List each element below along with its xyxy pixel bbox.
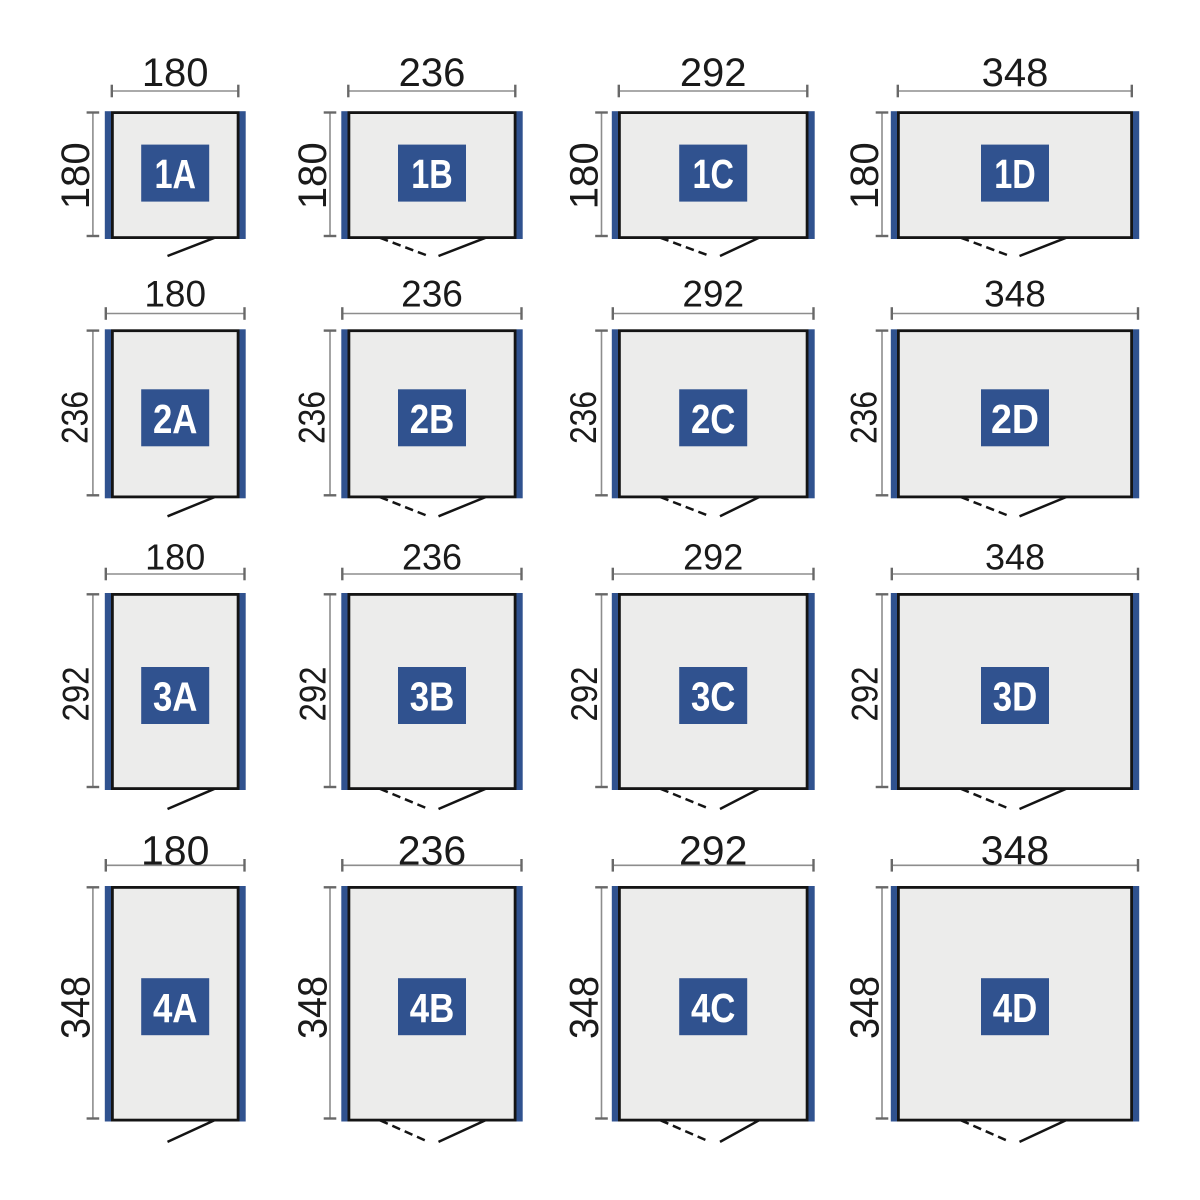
svg-text:236: 236 <box>563 391 604 444</box>
svg-text:2B: 2B <box>410 396 455 442</box>
svg-text:3C: 3C <box>691 674 736 720</box>
svg-text:348: 348 <box>561 976 607 1039</box>
svg-text:236: 236 <box>398 828 466 874</box>
svg-text:236: 236 <box>292 391 333 444</box>
svg-text:292: 292 <box>682 274 744 315</box>
svg-text:348: 348 <box>981 828 1049 874</box>
svg-text:1D: 1D <box>994 151 1036 197</box>
svg-text:3D: 3D <box>993 674 1038 720</box>
svg-text:180: 180 <box>145 537 205 578</box>
svg-text:348: 348 <box>53 976 99 1039</box>
svg-text:4B: 4B <box>410 985 455 1031</box>
svg-text:3A: 3A <box>153 674 198 720</box>
svg-text:2D: 2D <box>991 396 1039 442</box>
svg-text:1B: 1B <box>411 151 453 197</box>
svg-text:1A: 1A <box>154 151 196 197</box>
svg-text:1C: 1C <box>692 151 734 197</box>
svg-text:292: 292 <box>679 828 747 874</box>
svg-text:180: 180 <box>142 51 209 95</box>
svg-text:348: 348 <box>982 51 1049 95</box>
svg-text:348: 348 <box>984 274 1046 315</box>
svg-text:292: 292 <box>292 667 334 722</box>
svg-text:2A: 2A <box>153 396 198 442</box>
svg-text:180: 180 <box>144 274 206 315</box>
svg-text:236: 236 <box>54 391 95 444</box>
svg-text:236: 236 <box>402 537 462 578</box>
svg-text:4C: 4C <box>691 985 736 1031</box>
svg-text:292: 292 <box>54 667 96 722</box>
svg-text:4D: 4D <box>993 985 1038 1031</box>
svg-text:4A: 4A <box>153 985 198 1031</box>
svg-text:292: 292 <box>680 51 747 95</box>
svg-text:180: 180 <box>141 828 209 874</box>
svg-text:292: 292 <box>844 667 886 722</box>
svg-text:180: 180 <box>563 142 607 209</box>
svg-text:236: 236 <box>399 51 466 95</box>
svg-text:180: 180 <box>843 142 887 209</box>
svg-text:348: 348 <box>985 537 1045 578</box>
svg-text:236: 236 <box>401 274 463 315</box>
svg-text:2C: 2C <box>691 396 736 442</box>
svg-text:292: 292 <box>683 537 743 578</box>
svg-text:348: 348 <box>290 976 336 1039</box>
svg-text:348: 348 <box>842 976 888 1039</box>
svg-text:236: 236 <box>844 391 885 444</box>
svg-text:180: 180 <box>291 142 335 209</box>
svg-text:292: 292 <box>563 667 605 722</box>
svg-text:3B: 3B <box>410 674 455 720</box>
svg-text:180: 180 <box>54 142 98 209</box>
